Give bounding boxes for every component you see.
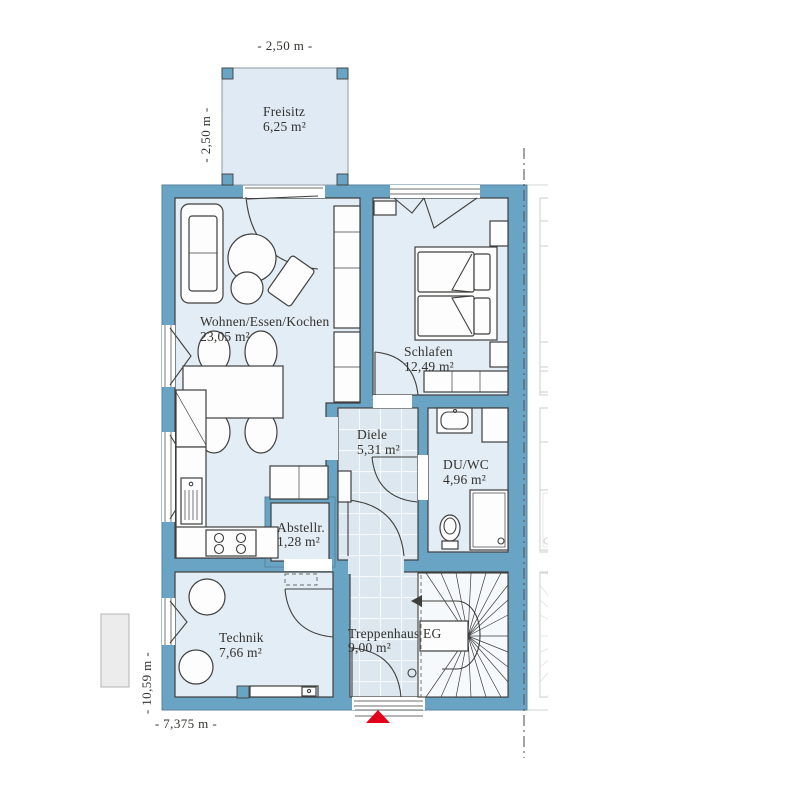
bathroom-sink (437, 408, 472, 433)
room-area-treppenhaus: 9,00 m² (348, 640, 391, 655)
wardrobe (424, 371, 508, 392)
room-label-duwc: DU/WC (443, 457, 489, 472)
room-area-technik: 7,66 m² (219, 645, 262, 660)
room-label-freisitz: Freisitz (263, 104, 305, 119)
bath-cabinet (482, 408, 508, 442)
entrance-marker (366, 710, 390, 723)
room-label-technik: Technik (219, 630, 264, 645)
exterior-pad (101, 614, 129, 687)
dimension-house-width: - 7,375 m - (155, 716, 217, 731)
adjacent-unit-ghost (521, 185, 800, 716)
dimension-terrace-width: - 2,50 m - (257, 38, 312, 53)
terrace-post (337, 68, 348, 79)
main-unit (162, 185, 527, 716)
shower (470, 490, 508, 550)
room-area-duwc: 4,96 m² (443, 472, 486, 487)
sideboard (270, 466, 351, 502)
shelf (374, 201, 396, 215)
sofa (181, 204, 223, 303)
room-label-diele: Diele (357, 427, 387, 442)
nightstand (490, 221, 508, 246)
tall-cabinets (334, 206, 360, 402)
nightstand (490, 342, 508, 367)
technik-bench (250, 686, 318, 697)
doorway-diele-treppenhaus (348, 558, 404, 574)
toilet (440, 515, 460, 549)
passage-wohnen-diele (324, 417, 338, 460)
room-label-treppenhaus: Treppenhaus EG (348, 626, 441, 641)
dimension-terrace-depth: - 2,50 m - (198, 107, 213, 162)
room-area-freisitz: 6,25 m² (263, 119, 306, 134)
room-label-abstell: Abstellr. (277, 520, 325, 535)
floor-plan-canvas: Freisitz 6,25 m² Wohnen/Essen/Kochen 23,… (0, 0, 800, 800)
tank-2 (179, 650, 213, 684)
room-label-schlafen: Schlafen (404, 344, 453, 359)
room-area-abstell: 1,28 m² (277, 534, 320, 549)
main-unit (521, 185, 800, 716)
terrace-post (222, 68, 233, 79)
room-area-wohnen: 23,05 m² (200, 329, 250, 344)
room-area-schlafen: 12,49 m² (404, 359, 454, 374)
room-area-diele: 5,31 m² (357, 442, 400, 457)
pillar (237, 686, 249, 698)
floor-plan-page: Freisitz 6,25 m² Wohnen/Essen/Kochen 23,… (0, 0, 800, 800)
terrace-post (337, 174, 348, 185)
stove (206, 530, 256, 556)
tank-1 (189, 579, 225, 615)
coffee-table-small (231, 272, 263, 304)
room-label-wohnen: Wohnen/Essen/Kochen (200, 314, 329, 329)
dimension-house-depth: - 10,59 m - (139, 652, 154, 714)
terrace-post (222, 174, 233, 185)
